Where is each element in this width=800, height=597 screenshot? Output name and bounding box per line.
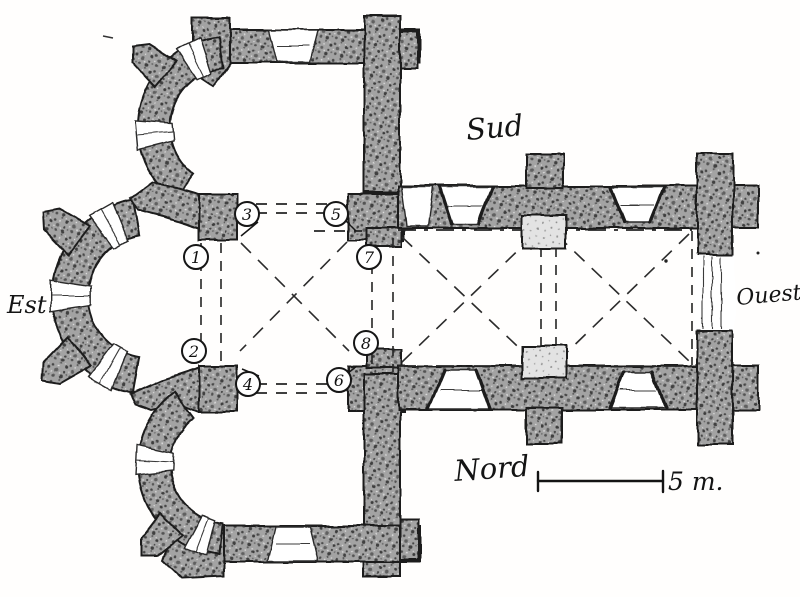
ink-dot [664,259,667,262]
crossing-respond-7 [366,228,402,246]
compass-label-nord: Nord [452,449,530,488]
north-transept-end-wall [224,526,420,562]
scale-bar-label: 5 m. [668,467,724,496]
crossing-pier-3 [199,194,237,240]
crossing-pier-4 [199,366,237,412]
marker-leader-lines [241,221,357,376]
ink-dot [757,252,760,255]
pier-marker-2: 2 [182,339,206,363]
pier-marker-number: 4 [242,375,253,394]
pier-marker-8: 8 [354,331,378,355]
scale-bar: 5 m. [538,467,724,496]
church-plan-page: 12345678 Sud Nord Est Ouest 5 m. [0,0,800,597]
nave-north-buttress [526,408,562,444]
pier-marker-3: 3 [235,202,259,226]
church-floor-plan: 12345678 Sud Nord Est Ouest 5 m. [0,0,800,597]
nave-pilasters [522,216,566,378]
west-portal [695,255,735,331]
nave-south-door [401,187,433,226]
vault-and-arch-lines [201,204,692,393]
pier-marker-7: 7 [357,245,381,269]
nave-south-buttress [527,154,563,188]
nave-north-pilaster [522,346,566,378]
pier-marker-1: 1 [184,245,208,269]
south-transept-corner-block [400,32,418,68]
stray-pencil-mark [103,36,113,38]
pier-marker-number: 6 [334,371,344,390]
pier-marker-number: 2 [188,342,199,361]
pier-marker-4: 4 [236,372,260,396]
pier-marker-6: 6 [327,368,351,392]
pier-marker-number: 1 [191,248,201,267]
pier-marker-number: 7 [364,248,375,267]
compass-label-est: Est [6,291,47,319]
pier-marker-number: 3 [242,205,252,224]
pier-marker-number: 5 [331,205,341,224]
nave-south-pilaster [522,216,566,248]
north-transept-corner-block [400,520,418,560]
compass-label-sud: Sud [465,108,525,147]
south-transept-west-wall [364,16,400,192]
pier-marker-5: 5 [324,202,348,226]
masonry-walls [43,16,758,578]
pier-marker-number: 8 [361,334,371,353]
compass-label-ouest: Ouest [735,280,800,311]
